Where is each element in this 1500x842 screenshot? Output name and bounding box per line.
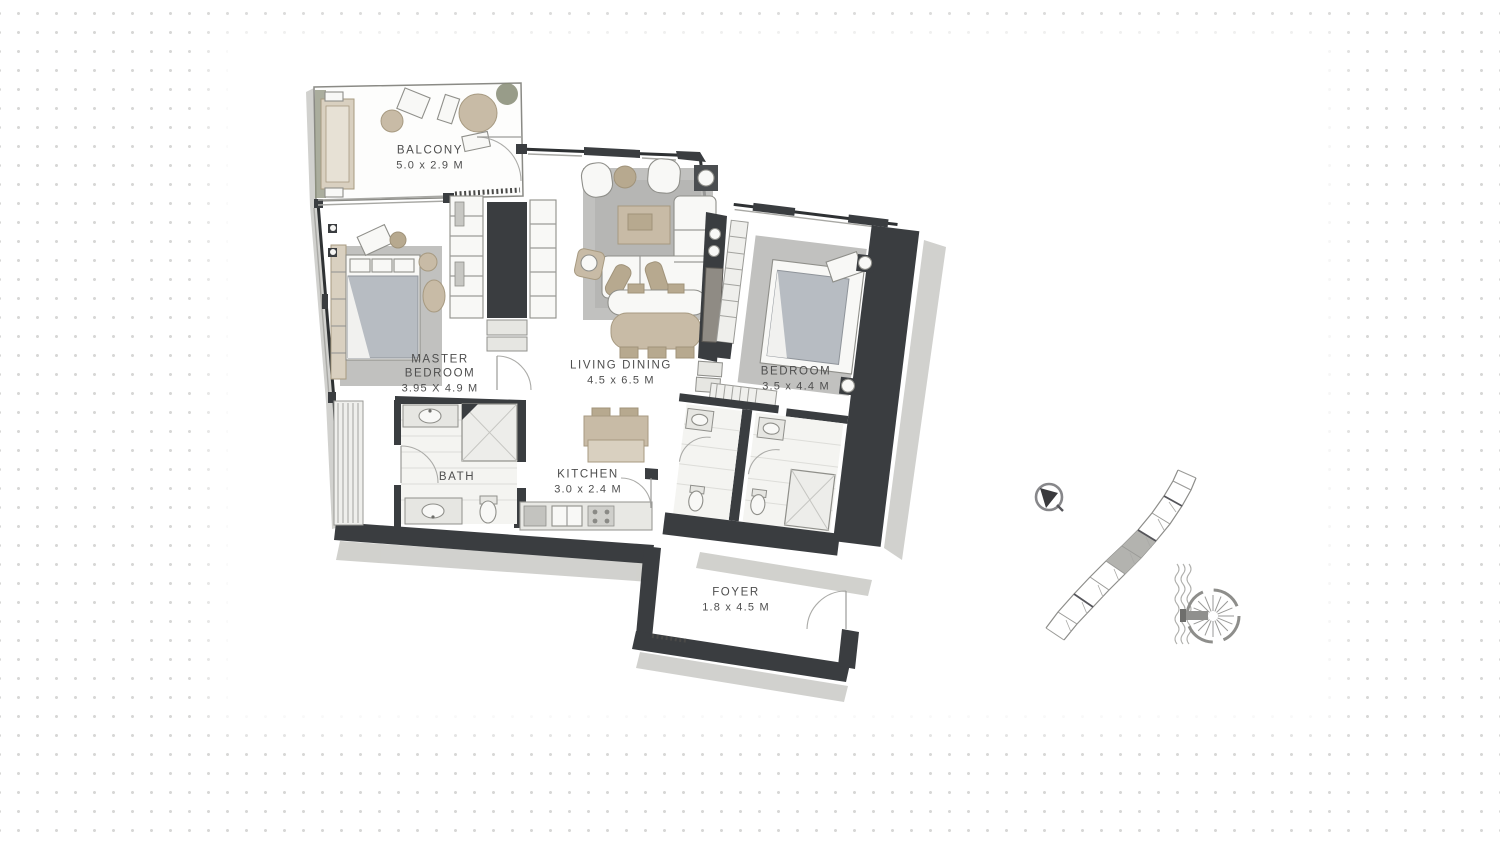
room-name: LIVING DINING	[570, 359, 672, 373]
room-dims: 3.0 x 2.4 M	[554, 483, 622, 497]
room-dims: 3.5 x 4.4 M	[761, 380, 832, 394]
room-label-foyer: FOYER 1.8 x 4.5 M	[702, 586, 770, 615]
master-chair	[423, 280, 445, 312]
master-bench	[331, 245, 346, 379]
balcony-table	[459, 94, 497, 132]
dining-table	[611, 313, 701, 349]
room-dims: 4.5 x 6.5 M	[570, 374, 672, 388]
room-name: BEDROOM	[761, 365, 832, 379]
room-balcony	[314, 83, 523, 201]
room-dims: 1.8 x 4.5 M	[702, 601, 770, 615]
master-side-table	[419, 253, 437, 271]
room-living-dining	[573, 158, 718, 358]
service-shaft	[487, 202, 527, 318]
page-canvas: BALCONY 5.0 x 2.9 M MASTER BEDROOM 3.95 …	[0, 0, 1500, 842]
room-label-living-dining: LIVING DINING 4.5 x 6.5 M	[570, 359, 672, 388]
room-label-bath: BATH	[439, 470, 475, 484]
room-name: MASTER BEDROOM	[380, 353, 500, 381]
room-label-balcony: BALCONY 5.0 x 2.9 M	[396, 144, 464, 173]
room-label-master-bedroom: MASTER BEDROOM 3.95 X 4.9 M	[380, 353, 500, 396]
room-label-bedroom: BEDROOM 3.5 x 4.4 M	[761, 365, 832, 394]
room-dims: 5.0 x 2.9 M	[396, 159, 464, 173]
room-name: BALCONY	[396, 144, 464, 158]
room-name: FOYER	[702, 586, 770, 600]
compass-icon	[1036, 484, 1063, 511]
wardrobe-right	[530, 200, 556, 318]
pouf	[614, 166, 636, 188]
floor-plan-svg	[0, 0, 1500, 842]
balcony-side-table	[381, 110, 403, 132]
room-bath	[334, 401, 517, 525]
dining-bench	[608, 290, 706, 315]
building-crescent	[1046, 470, 1196, 640]
location-map	[1036, 470, 1239, 644]
palm-trunk	[1184, 611, 1208, 620]
room-name: KITCHEN	[554, 468, 622, 482]
room-label-kitchen: KITCHEN 3.0 x 2.4 M	[554, 468, 622, 497]
room-dims: 3.95 X 4.9 M	[380, 382, 500, 396]
room-name: BATH	[439, 470, 475, 484]
plant-icon	[496, 83, 518, 105]
